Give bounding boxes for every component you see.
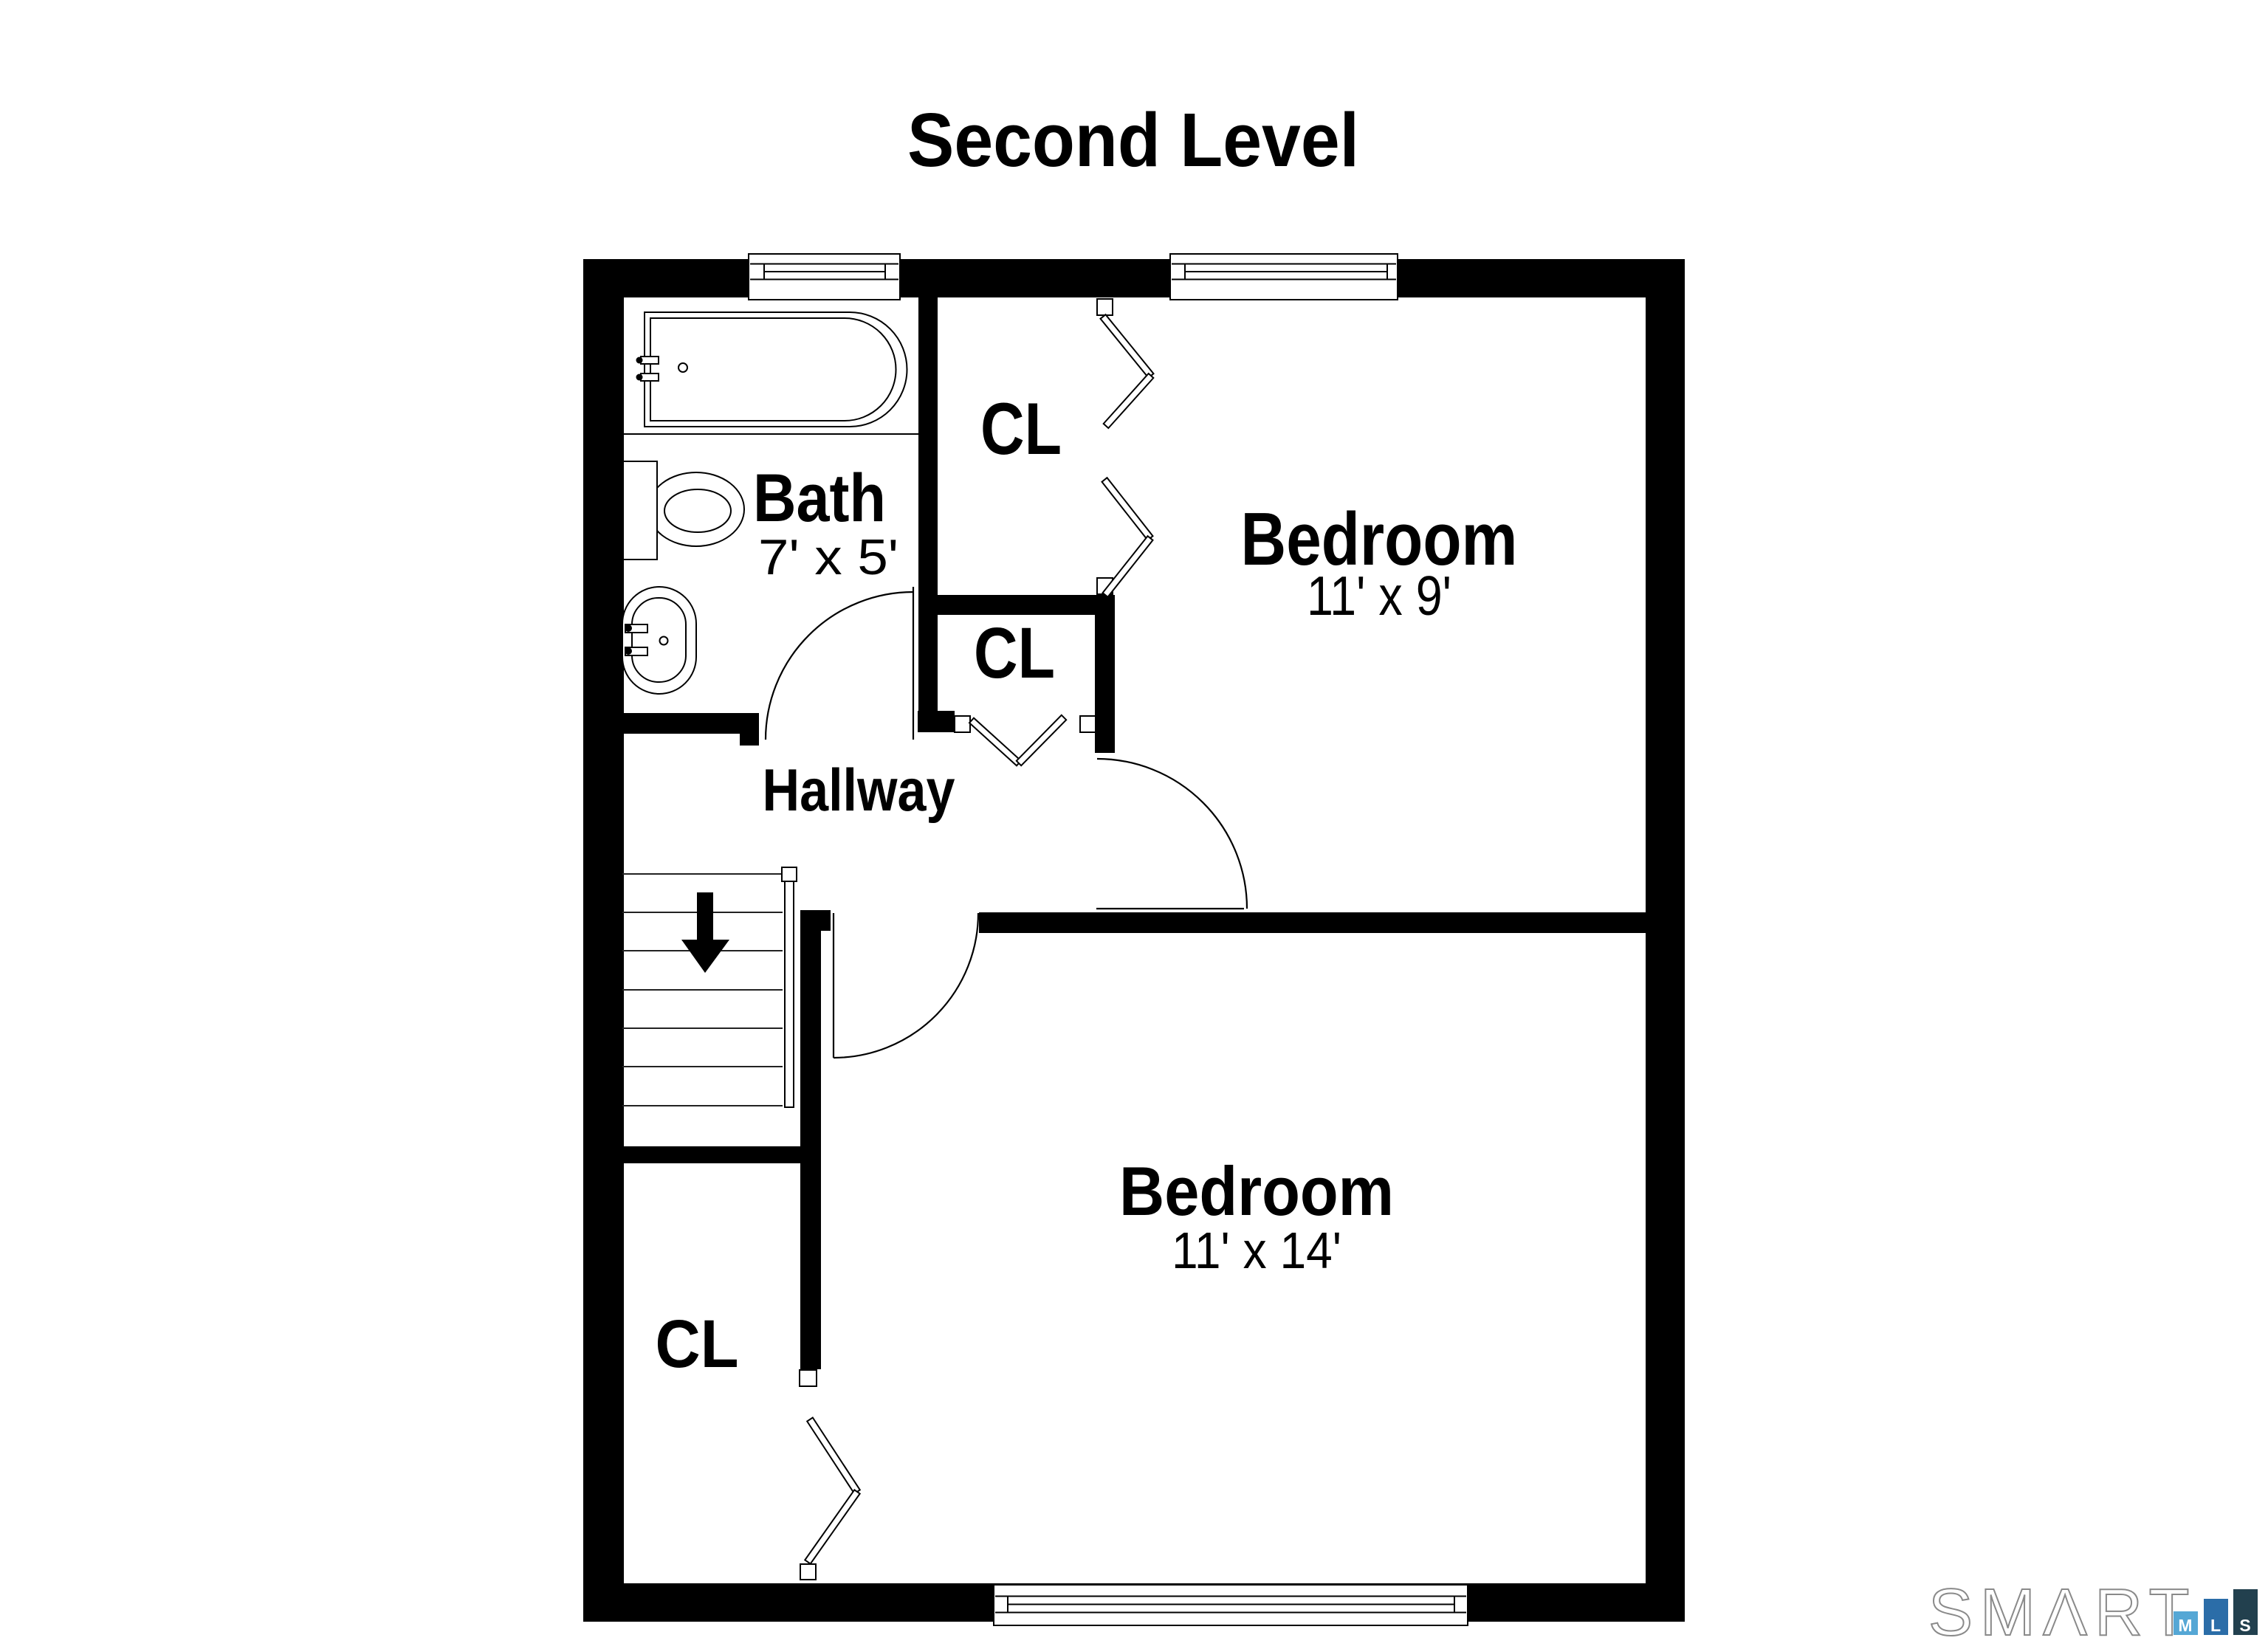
svg-text:S: S bbox=[2239, 1616, 2250, 1635]
svg-text:Second Level: Second Level bbox=[907, 97, 1359, 182]
svg-text:SMΛRT: SMΛRT bbox=[1928, 1576, 2196, 1649]
svg-text:11' x 9': 11' x 9' bbox=[1307, 565, 1451, 627]
svg-text:7' x 5': 7' x 5' bbox=[758, 529, 898, 585]
svg-text:Bath: Bath bbox=[753, 461, 886, 536]
svg-text:Hallway: Hallway bbox=[763, 757, 955, 824]
svg-text:M: M bbox=[2178, 1616, 2192, 1635]
svg-text:11' x 14': 11' x 14' bbox=[1172, 1222, 1341, 1279]
svg-text:CL: CL bbox=[980, 388, 1062, 469]
svg-text:Bedroom: Bedroom bbox=[1119, 1152, 1394, 1230]
svg-text:CL: CL bbox=[656, 1307, 739, 1382]
svg-text:CL: CL bbox=[974, 613, 1055, 693]
svg-text:L: L bbox=[2210, 1616, 2221, 1635]
